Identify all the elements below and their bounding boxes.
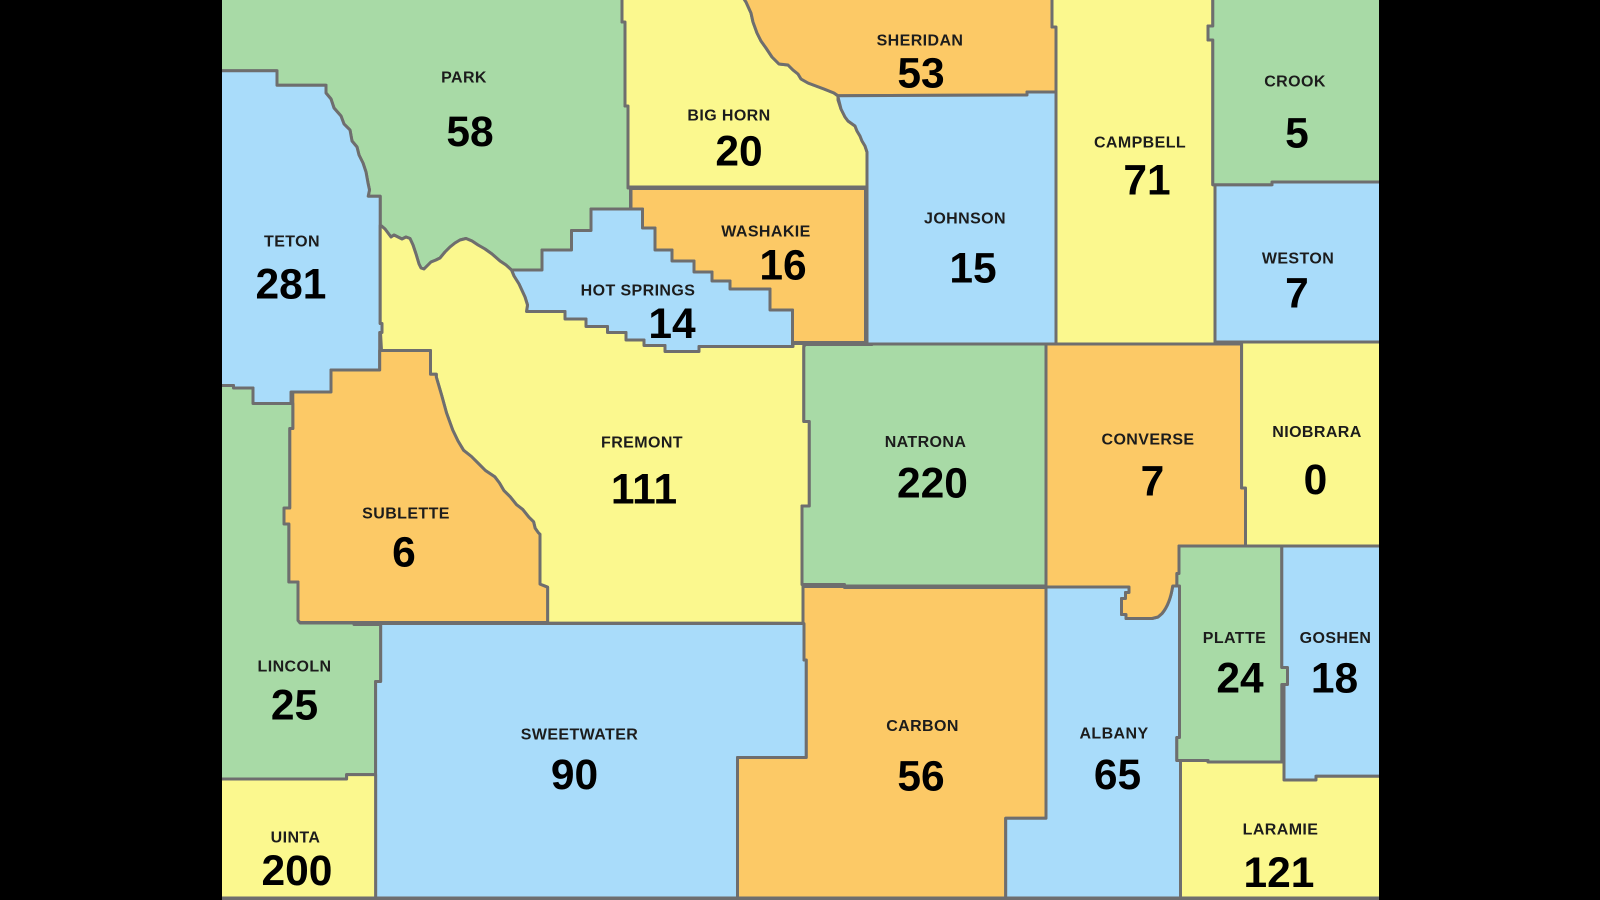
svg-text:5: 5 bbox=[1285, 111, 1309, 158]
svg-text:121: 121 bbox=[1244, 850, 1315, 897]
svg-text:53: 53 bbox=[897, 51, 944, 98]
svg-text:SUBLETTE: SUBLETTE bbox=[362, 506, 450, 523]
svg-text:LINCOLN: LINCOLN bbox=[258, 659, 332, 676]
svg-text:TETON: TETON bbox=[264, 234, 320, 251]
svg-text:GOSHEN: GOSHEN bbox=[1300, 630, 1372, 647]
svg-text:65: 65 bbox=[1094, 752, 1141, 799]
svg-text:CONVERSE: CONVERSE bbox=[1102, 432, 1195, 449]
svg-text:SWEETWATER: SWEETWATER bbox=[521, 727, 639, 744]
svg-text:111: 111 bbox=[611, 467, 677, 514]
svg-text:7: 7 bbox=[1285, 271, 1309, 318]
svg-text:24: 24 bbox=[1216, 656, 1264, 703]
svg-text:15: 15 bbox=[949, 246, 996, 293]
svg-text:200: 200 bbox=[262, 848, 333, 895]
svg-text:WASHAKIE: WASHAKIE bbox=[721, 224, 810, 241]
svg-text:HOT SPRINGS: HOT SPRINGS bbox=[581, 283, 696, 300]
svg-text:56: 56 bbox=[897, 754, 944, 801]
svg-text:ALBANY: ALBANY bbox=[1079, 726, 1148, 743]
svg-text:14: 14 bbox=[648, 301, 696, 348]
svg-text:PARK: PARK bbox=[441, 70, 487, 87]
svg-text:16: 16 bbox=[759, 243, 806, 290]
svg-text:NATRONA: NATRONA bbox=[885, 434, 967, 451]
svg-text:58: 58 bbox=[446, 109, 493, 156]
svg-text:20: 20 bbox=[715, 129, 762, 176]
svg-text:LARAMIE: LARAMIE bbox=[1243, 822, 1319, 839]
svg-text:PLATTE: PLATTE bbox=[1203, 630, 1266, 647]
svg-text:281: 281 bbox=[256, 262, 327, 309]
svg-text:CARBON: CARBON bbox=[886, 718, 959, 735]
svg-text:FREMONT: FREMONT bbox=[601, 435, 683, 452]
svg-text:BIG HORN: BIG HORN bbox=[687, 108, 770, 125]
svg-text:SHERIDAN: SHERIDAN bbox=[877, 33, 964, 50]
svg-text:220: 220 bbox=[897, 461, 968, 508]
svg-text:NIOBRARA: NIOBRARA bbox=[1272, 424, 1361, 441]
svg-text:25: 25 bbox=[271, 683, 318, 730]
svg-text:6: 6 bbox=[392, 530, 416, 577]
svg-text:90: 90 bbox=[551, 752, 598, 799]
svg-text:18: 18 bbox=[1311, 656, 1358, 703]
svg-text:WESTON: WESTON bbox=[1262, 251, 1334, 268]
svg-text:CAMPBELL: CAMPBELL bbox=[1094, 135, 1186, 152]
svg-text:UINTA: UINTA bbox=[271, 830, 321, 847]
svg-text:7: 7 bbox=[1141, 459, 1165, 506]
svg-text:0: 0 bbox=[1304, 457, 1328, 504]
svg-text:71: 71 bbox=[1123, 158, 1170, 205]
svg-text:CROOK: CROOK bbox=[1264, 74, 1326, 91]
svg-text:JOHNSON: JOHNSON bbox=[924, 211, 1006, 228]
